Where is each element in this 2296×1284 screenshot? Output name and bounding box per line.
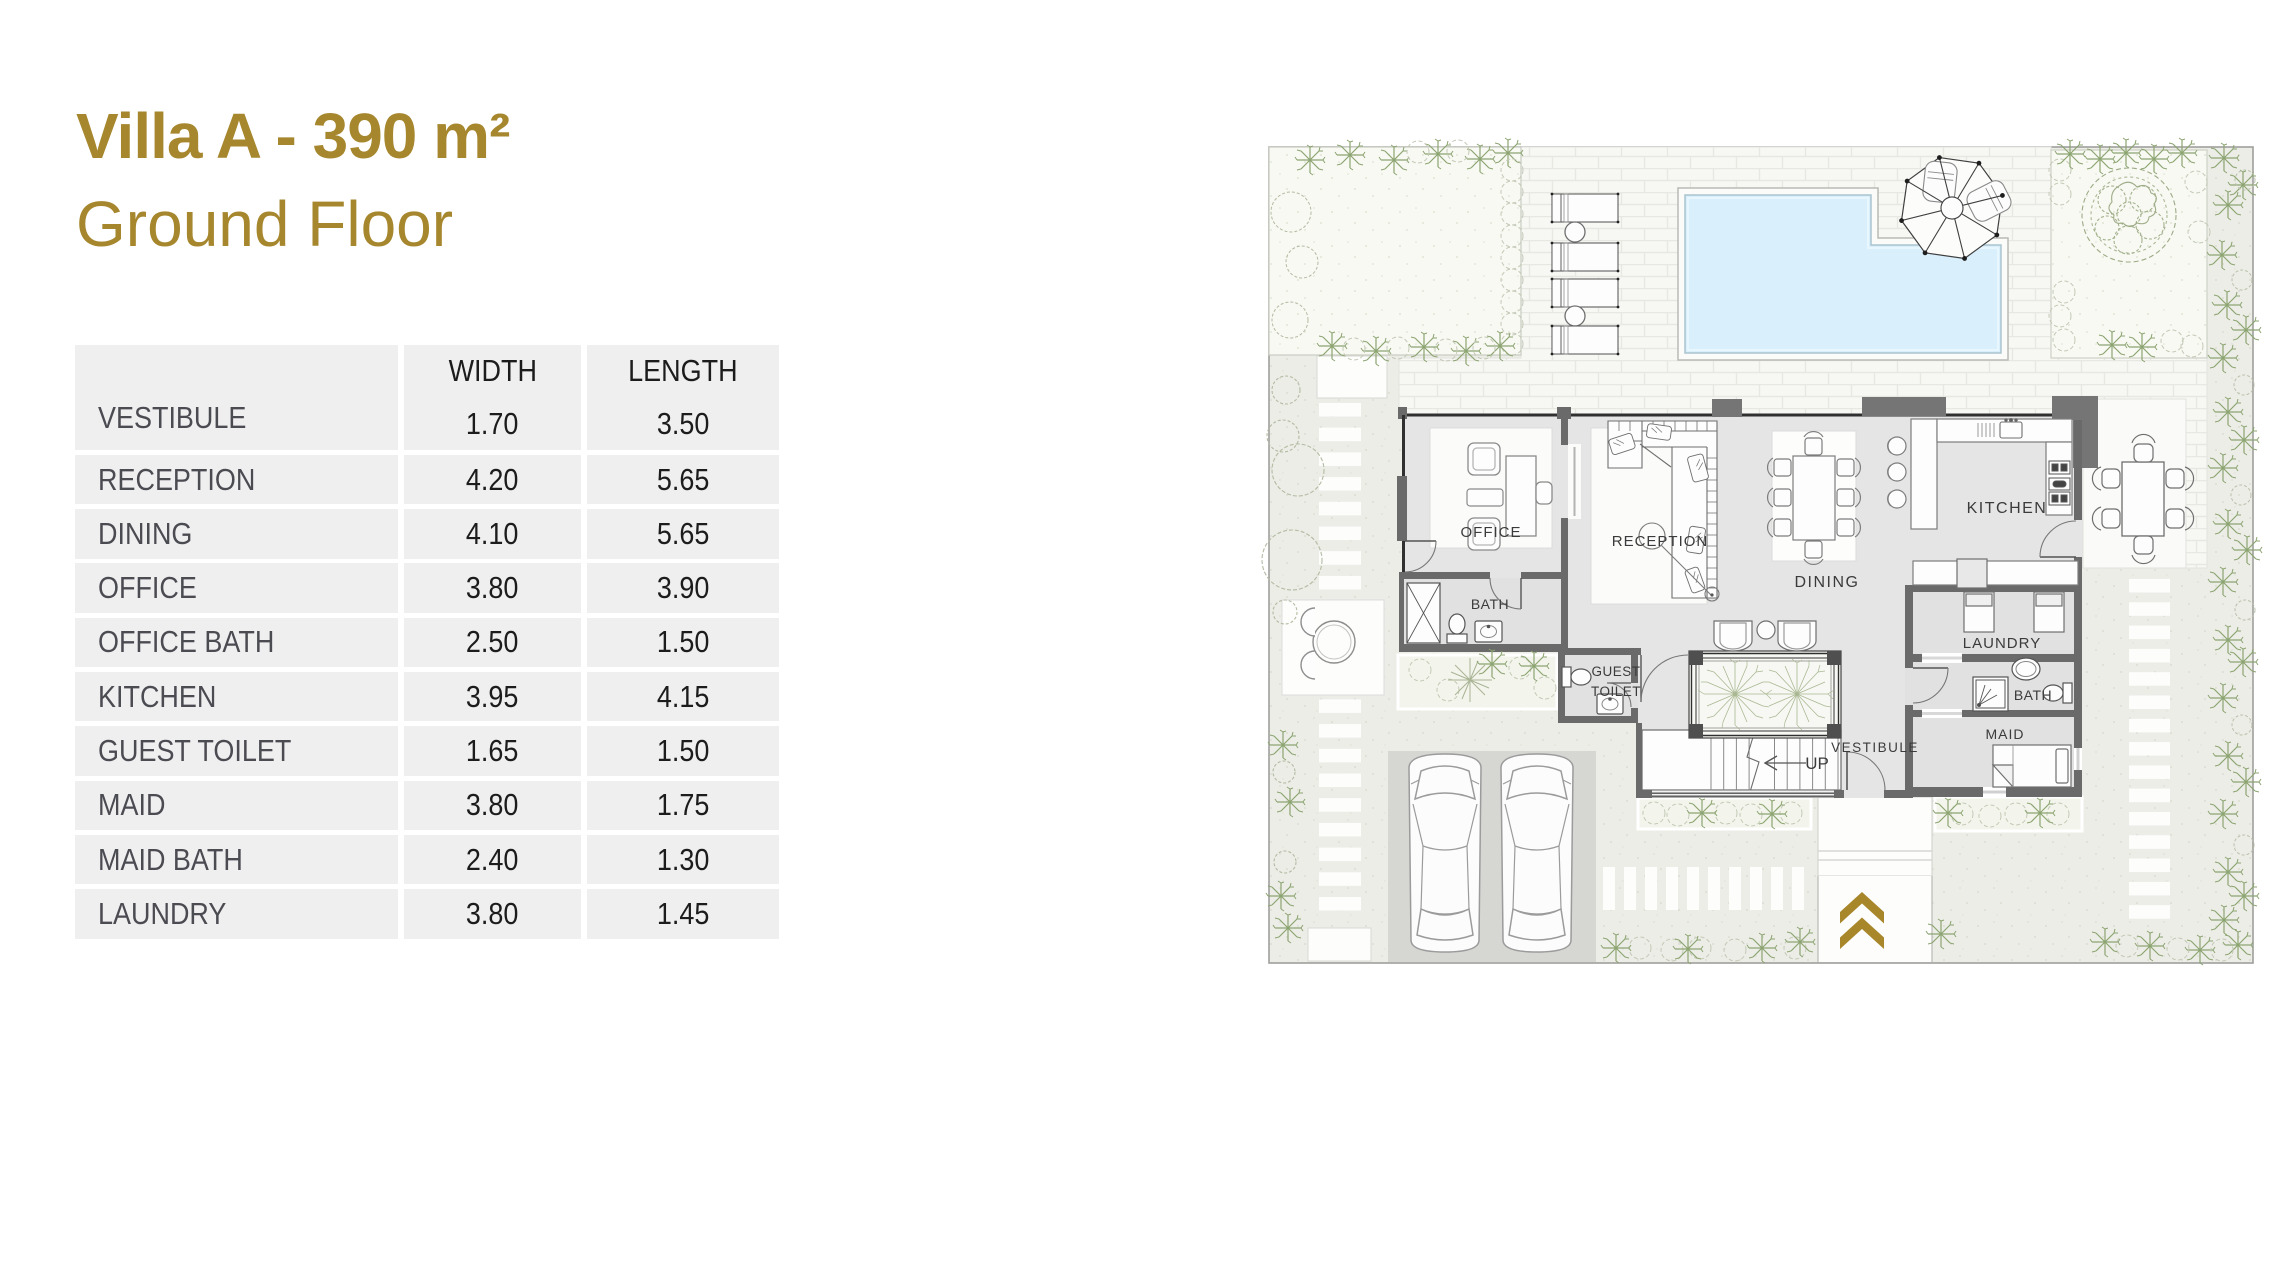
svg-text:KITCHEN: KITCHEN bbox=[1967, 500, 2048, 517]
svg-text:UP: UP bbox=[1805, 754, 1829, 773]
svg-text:TOILET: TOILET bbox=[1591, 684, 1641, 699]
svg-text:OFFICE: OFFICE bbox=[1461, 524, 1522, 541]
svg-text:RECEPTION: RECEPTION bbox=[1612, 533, 1709, 550]
svg-text:DINING: DINING bbox=[1795, 574, 1860, 591]
svg-text:MAID: MAID bbox=[1986, 726, 2025, 742]
svg-text:BATH: BATH bbox=[1471, 596, 1509, 612]
svg-text:VESTIBULE: VESTIBULE bbox=[1831, 740, 1919, 755]
svg-text:GUEST: GUEST bbox=[1591, 664, 1640, 679]
svg-text:LAUNDRY: LAUNDRY bbox=[1963, 635, 2041, 652]
svg-text:BATH: BATH bbox=[2014, 687, 2052, 703]
